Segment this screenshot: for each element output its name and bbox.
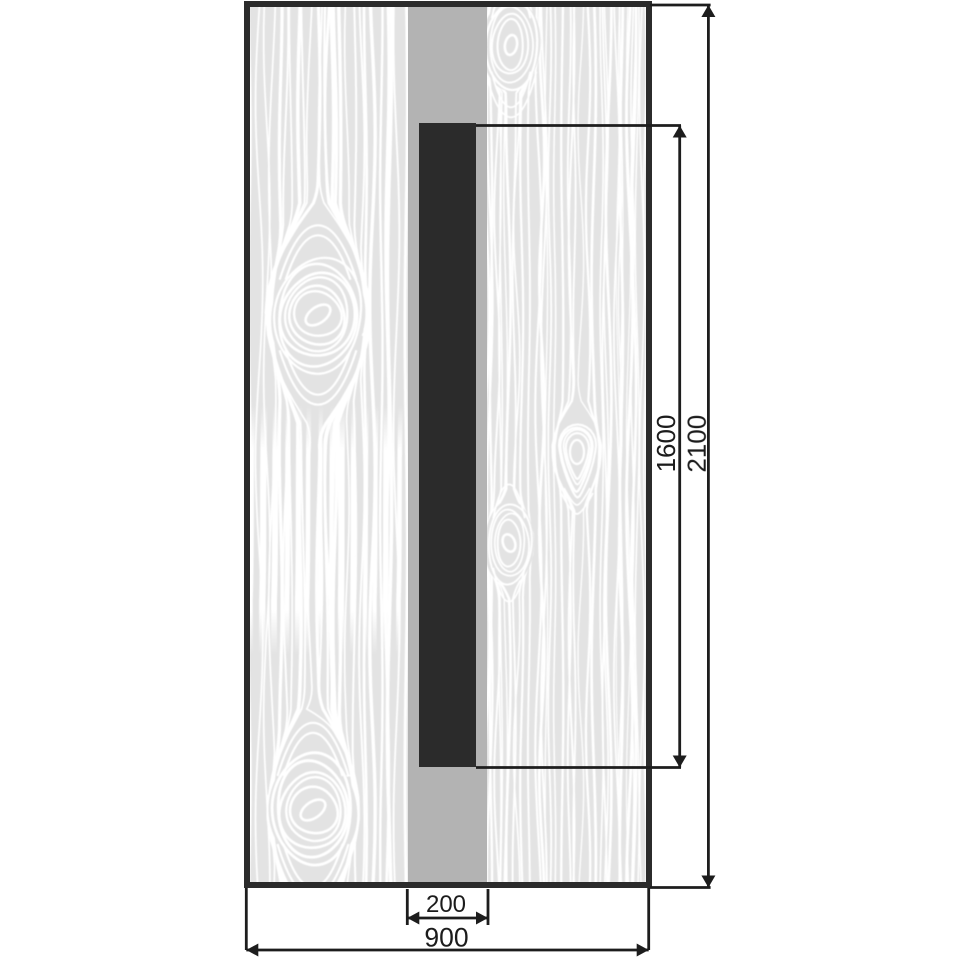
svg-text:1600: 1600 — [651, 415, 681, 473]
svg-text:2100: 2100 — [682, 415, 712, 473]
svg-text:900: 900 — [424, 922, 468, 952]
svg-text:200: 200 — [426, 891, 466, 918]
